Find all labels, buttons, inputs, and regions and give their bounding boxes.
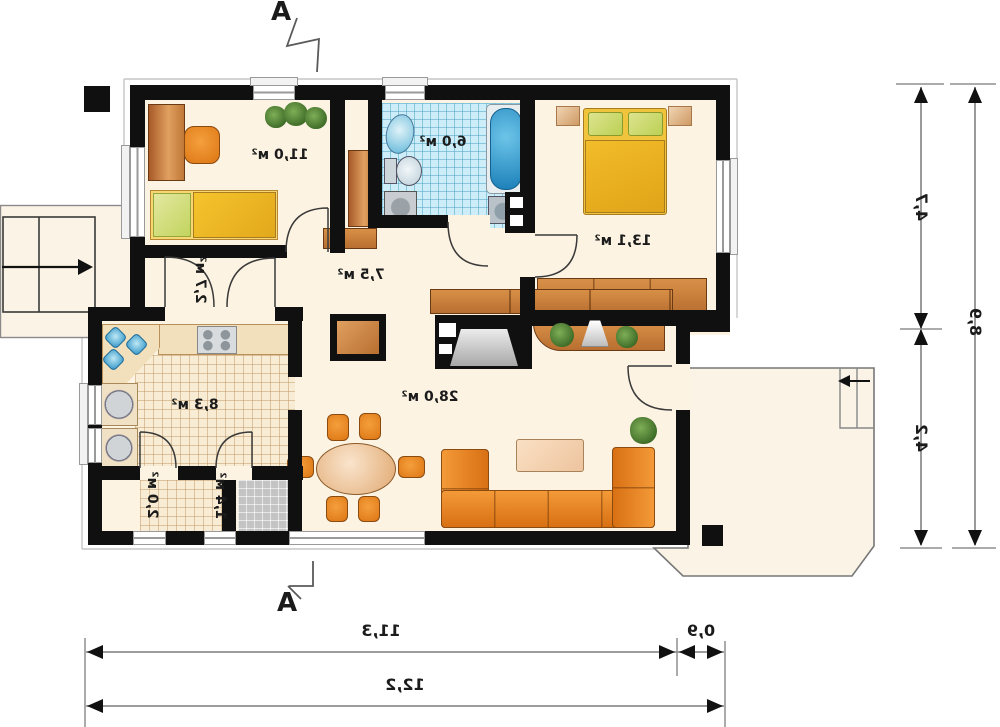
floor-plan-image: A A 11,0 м² 6,0 м² 13,1 м² 2,7 м² 7,5 м²… [0,0,1000,727]
dim-right-total: 8,9 [964,277,986,367]
room-area-kitchen: 8,3 м² [150,394,240,416]
dim-bottom-main: 11,3 [336,620,426,642]
room-area-bedroom: 13,1 м² [578,230,668,252]
dim-right-bottom: 4,2 [910,393,932,483]
section-label-top: A [236,1,326,23]
door-arc [628,366,672,410]
room-area-corridor: 2,7 м² [189,235,211,325]
dim-bottom-side: 0,9 [656,620,746,642]
section-label-bottom: A [242,592,332,614]
door-arc [286,208,328,252]
section-line-top [287,18,319,72]
room-area-hall: 7,5 м² [316,264,406,286]
section-cut-marks [287,18,319,599]
room-area-entry: 1,4 м² [209,451,231,541]
annotations [0,0,1000,727]
dim-right-top: 4,7 [910,162,932,252]
room-area-study: 11,0 м² [235,144,325,166]
door-arc [227,258,275,307]
door-arc [535,235,577,277]
door-arc [448,222,488,266]
room-area-pantry: 2,0 м² [141,450,163,540]
dim-bottom-total: 12,2 [360,674,450,696]
room-area-bathroom: 6,0 м² [398,131,488,153]
room-area-living: 28,0 м² [385,386,475,408]
